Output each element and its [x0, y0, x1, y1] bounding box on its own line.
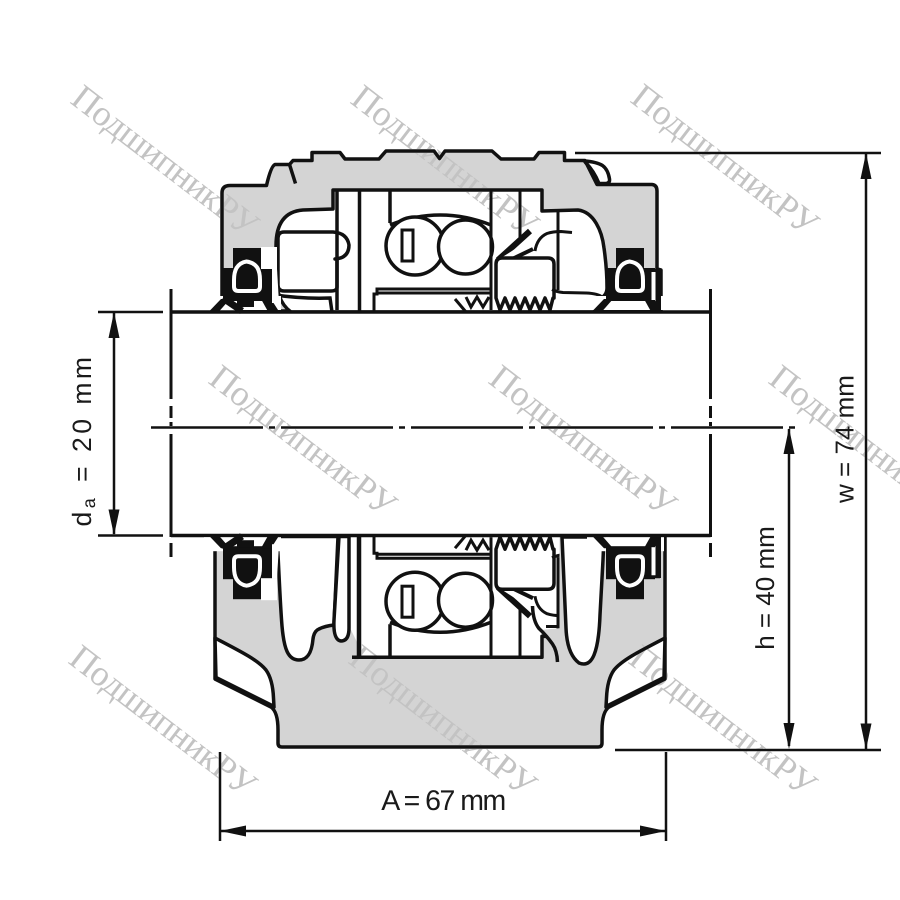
- svg-text:A = 67 mm: A = 67 mm: [381, 785, 505, 817]
- svg-text:h = 40 mm: h = 40 mm: [750, 526, 780, 650]
